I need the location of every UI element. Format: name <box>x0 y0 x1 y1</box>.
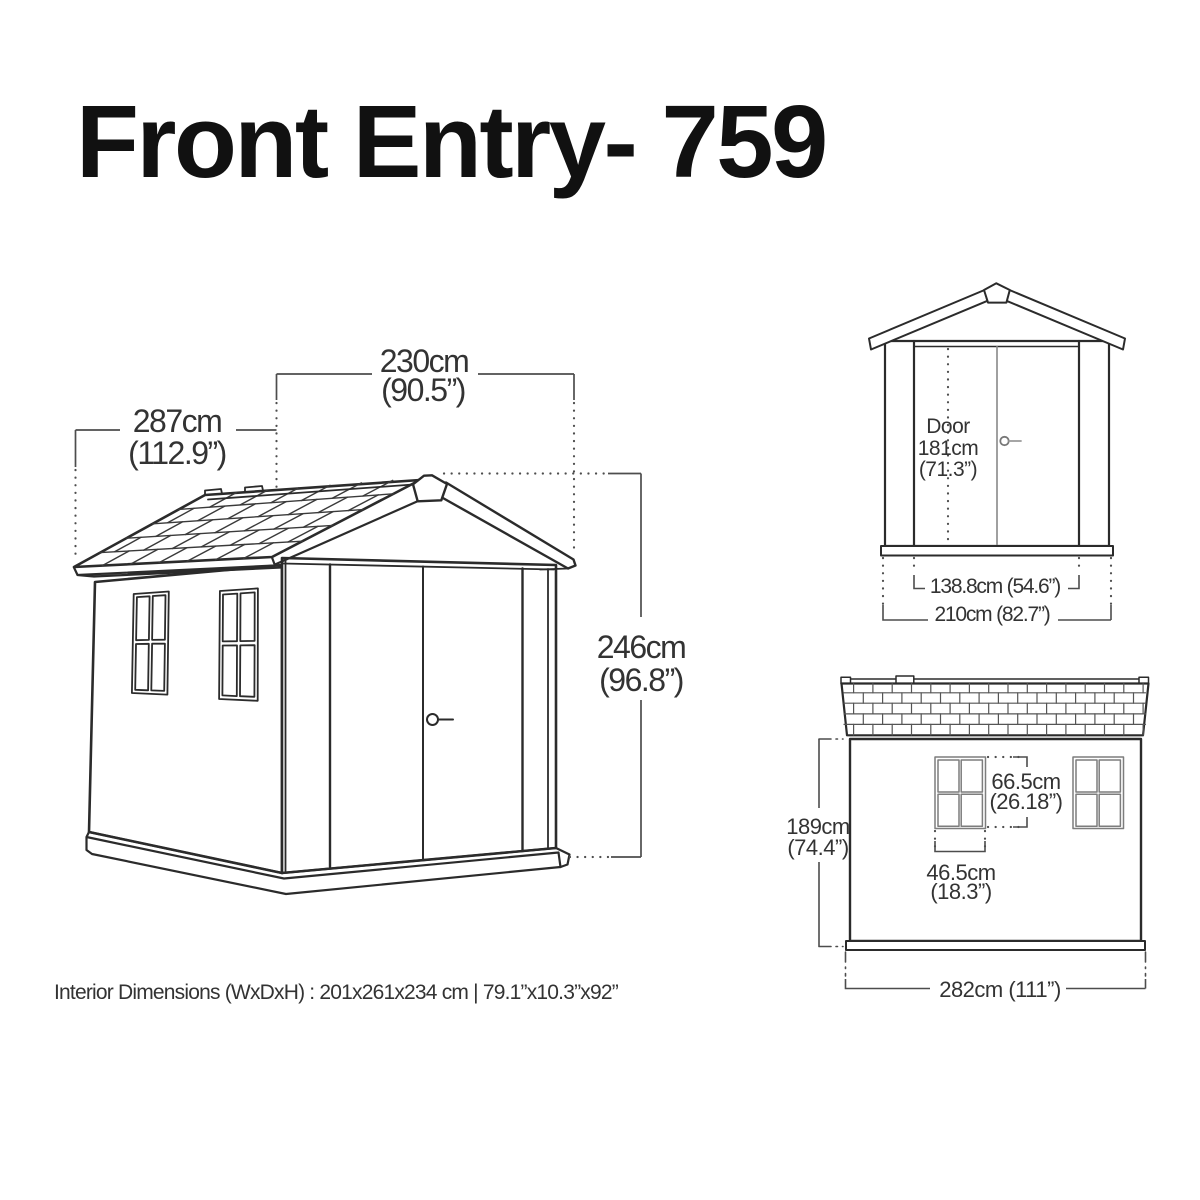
svg-text:(90.5”): (90.5”) <box>381 372 465 408</box>
svg-text:138.8cm (54.6”): 138.8cm (54.6”) <box>930 575 1060 598</box>
svg-text:(96.8”): (96.8”) <box>599 662 683 698</box>
svg-text:181cm: 181cm <box>918 437 979 460</box>
svg-text:282cm (111”): 282cm (111”) <box>939 977 1061 1002</box>
svg-text:210cm (82.7”): 210cm (82.7”) <box>934 603 1049 626</box>
svg-text:(18.3”): (18.3”) <box>930 879 991 904</box>
svg-text:(112.9”): (112.9”) <box>128 435 226 471</box>
svg-text:(26.18”): (26.18”) <box>989 789 1062 814</box>
svg-text:Door: Door <box>926 415 970 438</box>
svg-text:(74.4”): (74.4”) <box>787 835 848 860</box>
svg-text:Interior Dimensions (WxDxH) :: Interior Dimensions (WxDxH) : 201x261x23… <box>54 981 619 1004</box>
svg-text:246cm: 246cm <box>597 629 686 665</box>
svg-text:287cm: 287cm <box>133 403 222 439</box>
svg-text:Front Entry- 759: Front Entry- 759 <box>76 84 826 199</box>
svg-text:(71.3”): (71.3”) <box>919 458 977 481</box>
